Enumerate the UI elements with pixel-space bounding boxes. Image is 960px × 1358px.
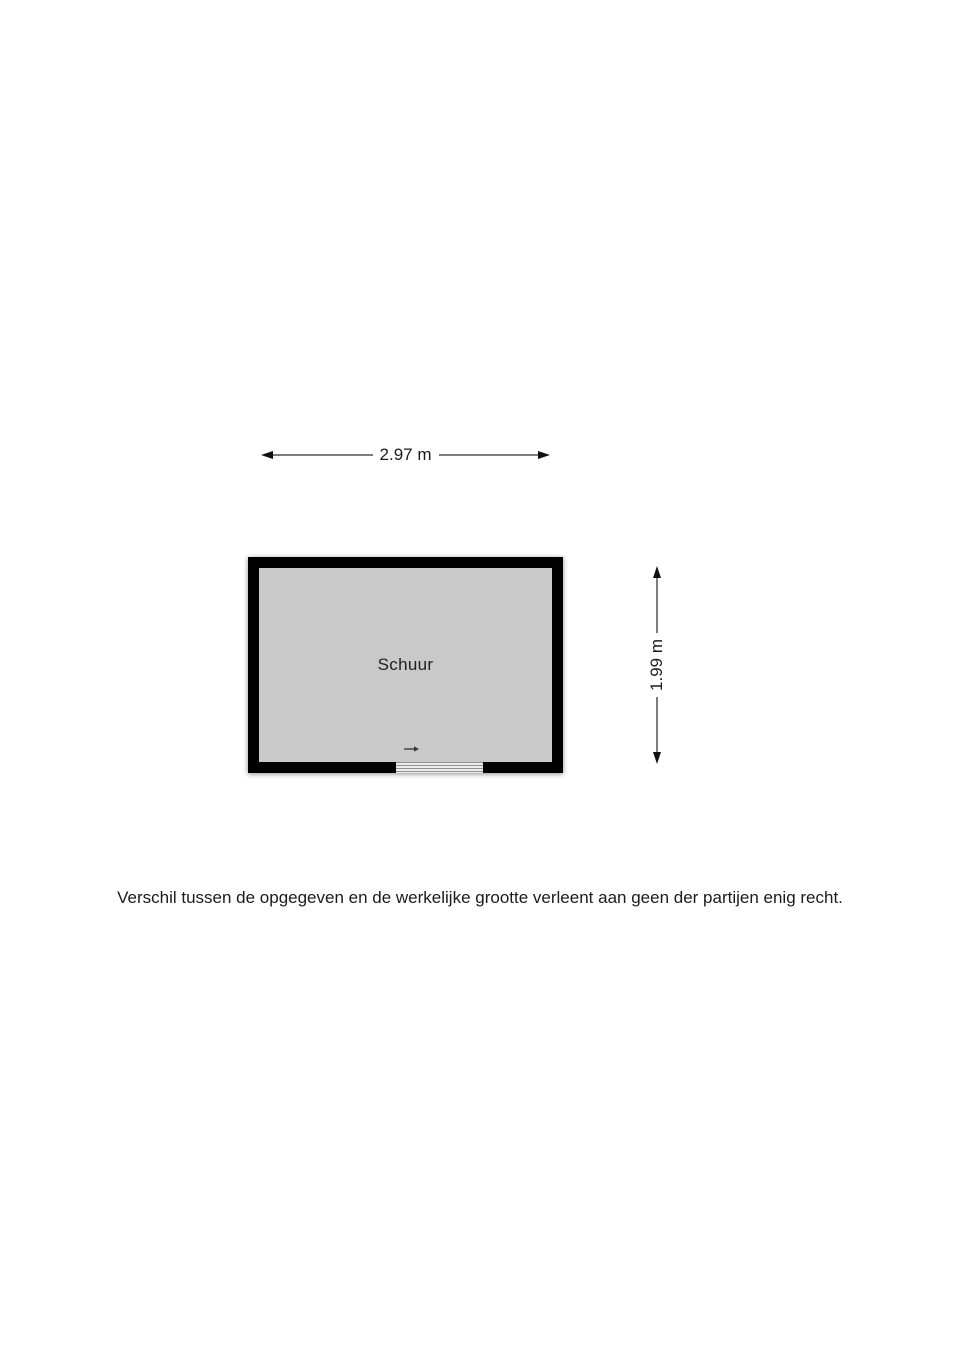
arrowhead-right-icon (538, 451, 550, 459)
room-schuur: Schuur (248, 557, 563, 773)
room-floor: Schuur (259, 568, 552, 762)
room-label: Schuur (378, 655, 434, 675)
disclaimer-text: Verschil tussen de opgegeven en de werke… (0, 888, 960, 908)
dimension-line-segment (273, 454, 373, 456)
arrowhead-down-icon (653, 752, 661, 764)
width-dimension: 2.97 m (261, 446, 550, 464)
dimension-line-segment (439, 454, 539, 456)
arrowhead-left-icon (261, 451, 273, 459)
height-dimension-label: 1.99 m (648, 639, 666, 691)
door-direction-arrow-icon (404, 745, 420, 753)
height-dimension: 1.99 m (648, 566, 666, 764)
arrowhead-up-icon (653, 566, 661, 578)
dimension-line-segment (656, 697, 658, 752)
width-dimension-label: 2.97 m (380, 446, 432, 464)
door-threshold (396, 762, 483, 773)
floorplan-canvas: 2.97 m Schuur 1.99 m Verschil tussen de … (0, 0, 960, 1358)
dimension-line-segment (656, 578, 658, 633)
